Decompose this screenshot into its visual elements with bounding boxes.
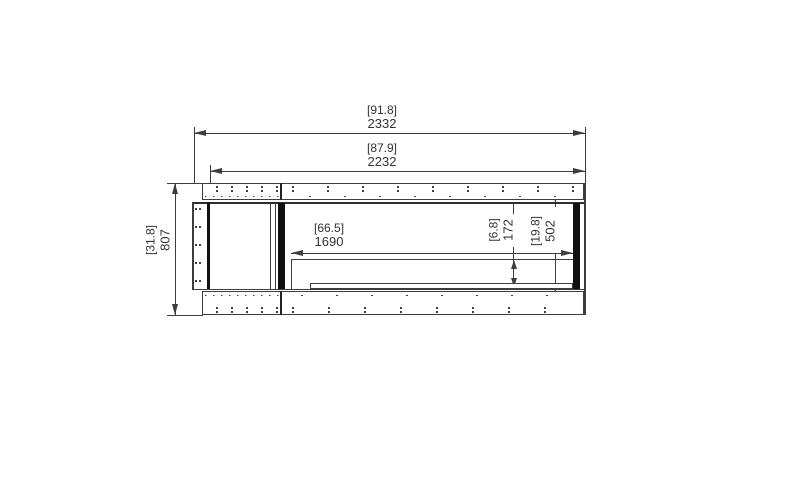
ext-line-width-right bbox=[585, 127, 586, 183]
interior-rear-ledge bbox=[291, 259, 573, 260]
label-overall-width: [91.8] 2332 bbox=[367, 103, 397, 131]
screw-dots bbox=[216, 190, 281, 192]
overall-height-inches: [31.8] bbox=[144, 225, 159, 255]
screw-dots bbox=[216, 307, 281, 309]
arrow-up-icon bbox=[172, 183, 178, 194]
dim-line-front-width bbox=[210, 171, 585, 172]
opening-height-inches: [19.8] bbox=[529, 216, 544, 246]
firebox-top-edge bbox=[192, 202, 585, 204]
screw-dots bbox=[205, 196, 282, 198]
overall-width-inches: [91.8] bbox=[367, 103, 397, 117]
firebox-bottom-edge bbox=[192, 289, 585, 291]
glass-bar-right bbox=[573, 203, 580, 289]
label-opening-height: [19.8] 502 bbox=[529, 216, 558, 246]
label-burner-width: [66.5] 1690 bbox=[314, 221, 344, 249]
arrow-left-icon bbox=[210, 168, 222, 174]
burner-width-mm: 1690 bbox=[314, 235, 344, 249]
screw-dots bbox=[216, 311, 281, 313]
screw-dots bbox=[292, 307, 576, 309]
right-outer-edge bbox=[584, 183, 586, 315]
arrow-left-icon bbox=[194, 130, 206, 136]
arrow-right-icon bbox=[573, 130, 585, 136]
screw-dots bbox=[205, 295, 282, 297]
screw-dots bbox=[292, 190, 576, 192]
left-panel-inner-edge bbox=[207, 202, 211, 289]
screw-dots bbox=[292, 311, 576, 313]
technical-drawing: [91.8] 2332 [87.9] 2232 [66.5] 1690 [31.… bbox=[0, 0, 788, 487]
arrow-right-icon bbox=[561, 250, 573, 256]
front-width-inches: [87.9] bbox=[367, 141, 397, 155]
divider-line-1 bbox=[270, 203, 271, 289]
dim-line-overall-width bbox=[194, 133, 585, 134]
glass-bar-left bbox=[278, 203, 285, 289]
arrow-down-icon bbox=[172, 304, 178, 315]
arrow-left-icon bbox=[291, 250, 303, 256]
overall-height-mm: 807 bbox=[158, 225, 173, 255]
burner-tray bbox=[310, 283, 573, 289]
label-deck-height: [6.8] 172 bbox=[487, 218, 516, 241]
label-front-width: [87.9] 2232 bbox=[367, 141, 397, 169]
arrow-right-icon bbox=[573, 168, 585, 174]
divider-line-2 bbox=[275, 203, 276, 289]
deck-height-inches: [6.8] bbox=[487, 218, 502, 241]
dim-line-deck-height-upper bbox=[513, 203, 514, 214]
screw-dots bbox=[292, 186, 576, 188]
screw-dots bbox=[216, 186, 281, 188]
ext-line-height-bottom bbox=[167, 315, 203, 316]
opening-height-mm: 502 bbox=[543, 216, 558, 246]
left-panel-outer-edge bbox=[192, 202, 194, 289]
burner-width-inches: [66.5] bbox=[314, 221, 344, 235]
label-overall-height: [31.8] 807 bbox=[144, 225, 173, 255]
arrow-up-icon bbox=[511, 260, 517, 269]
screw-dots bbox=[195, 208, 197, 286]
screw-dots bbox=[309, 196, 576, 198]
dim-line-overall-height bbox=[175, 183, 176, 315]
deck-height-mm: 172 bbox=[501, 218, 516, 241]
interior-recess-left-edge bbox=[291, 259, 292, 289]
overall-width-mm: 2332 bbox=[367, 117, 397, 131]
dim-line-burner-width bbox=[291, 253, 573, 254]
screw-dots bbox=[199, 208, 201, 286]
screw-dots bbox=[301, 295, 578, 297]
front-width-mm: 2232 bbox=[367, 155, 397, 169]
